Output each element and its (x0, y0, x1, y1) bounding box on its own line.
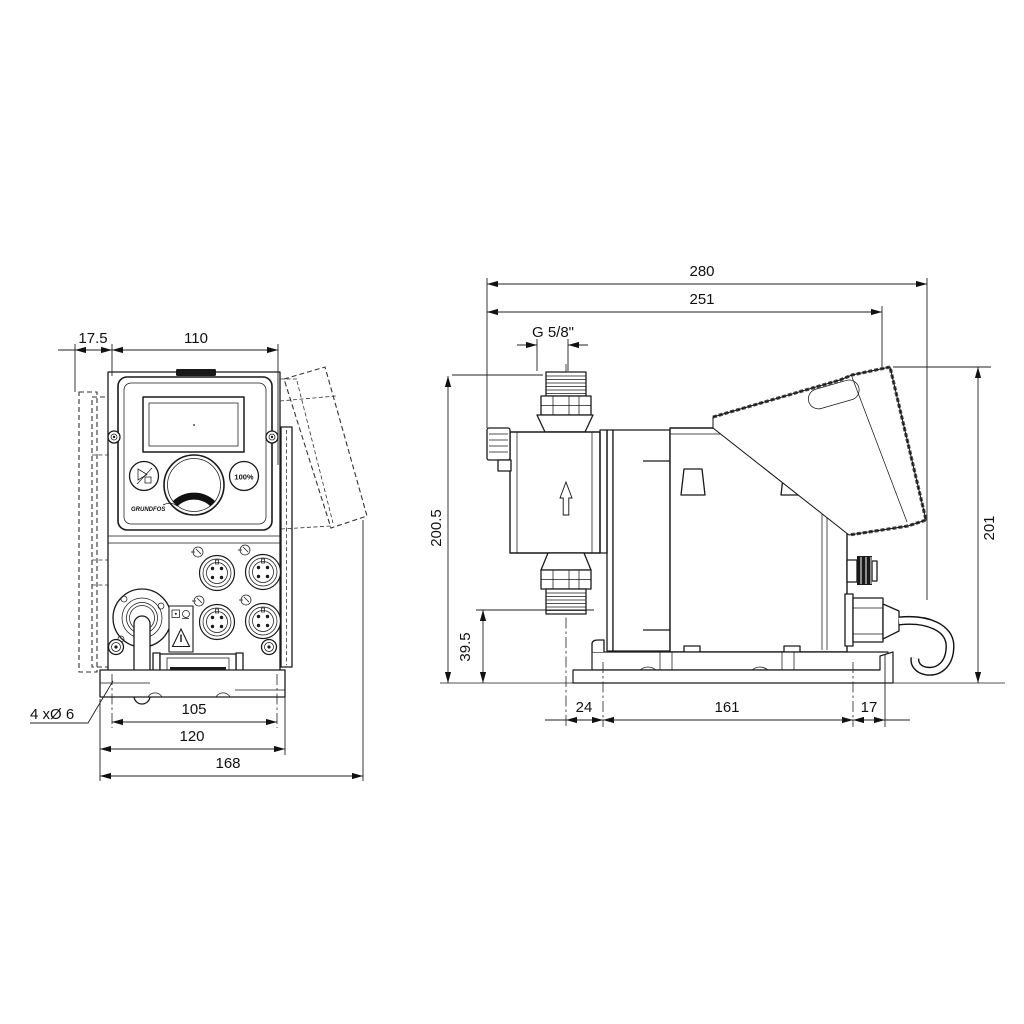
dim-height-39-5: 39.5 (457, 632, 474, 661)
corner-screw-right (262, 640, 277, 655)
dim-width-110: 110 (184, 330, 208, 347)
vent-valve-knob[interactable] (487, 428, 511, 471)
svg-text:GRUNDFOS: GRUNDFOS (131, 507, 165, 513)
top-tab (176, 369, 216, 376)
wall-hook-slot (681, 469, 705, 495)
dosing-head (487, 372, 600, 614)
m12-connector (246, 555, 281, 590)
corner-screw-left (109, 640, 124, 655)
dim-overall-length-280: 280 (689, 263, 714, 280)
dim-thread-g58: G 5/8" (532, 324, 574, 341)
panel-side-screw-left (108, 431, 120, 443)
m12-connector (200, 556, 235, 591)
100-percent-button[interactable]: 100% (230, 462, 259, 491)
dim-rear-offset-17: 17 (861, 699, 878, 716)
panel-side-screw-right (266, 431, 278, 443)
start-stop-button[interactable] (130, 462, 159, 491)
warning-label (169, 606, 193, 652)
click-wheel-knob[interactable] (164, 455, 224, 515)
pump-dimensional-drawing: 100% GRUNDFOS (0, 0, 1024, 1024)
power-cable-side (899, 620, 950, 671)
front-view: 100% GRUNDFOS (30, 330, 367, 781)
100-percent-label: 100% (234, 473, 254, 482)
m12-connector (200, 605, 235, 640)
dim-offset-17-5: 17.5 (78, 330, 107, 347)
dim-depth-168: 168 (215, 755, 240, 772)
dim-cover-length-251: 251 (689, 291, 714, 308)
dim-hole-pitch-105: 105 (181, 701, 206, 718)
dim-front-offset-24: 24 (576, 699, 593, 716)
suction-connection (541, 553, 591, 614)
control-panel: 100% GRUNDFOS (108, 369, 278, 530)
dim-height-201: 201 (981, 515, 998, 540)
rear-m12-connector (847, 556, 877, 585)
mounting-holes-callout: 4 xØ 6 (30, 706, 74, 723)
dim-height-200-5: 200.5 (428, 509, 445, 547)
dim-base-length-161: 161 (714, 699, 739, 716)
discharge-connection (537, 372, 593, 432)
technical-drawing-page: 100% GRUNDFOS (0, 0, 1024, 1024)
mounting-bracket (100, 670, 285, 697)
side-view: 280 251 G 5/8" 200.5 39.5 201 (428, 263, 1005, 727)
m12-connector (246, 604, 281, 639)
control-cover-hidden-outline (280, 367, 367, 529)
dim-bracket-120: 120 (179, 728, 204, 745)
cable-gland (845, 594, 899, 646)
